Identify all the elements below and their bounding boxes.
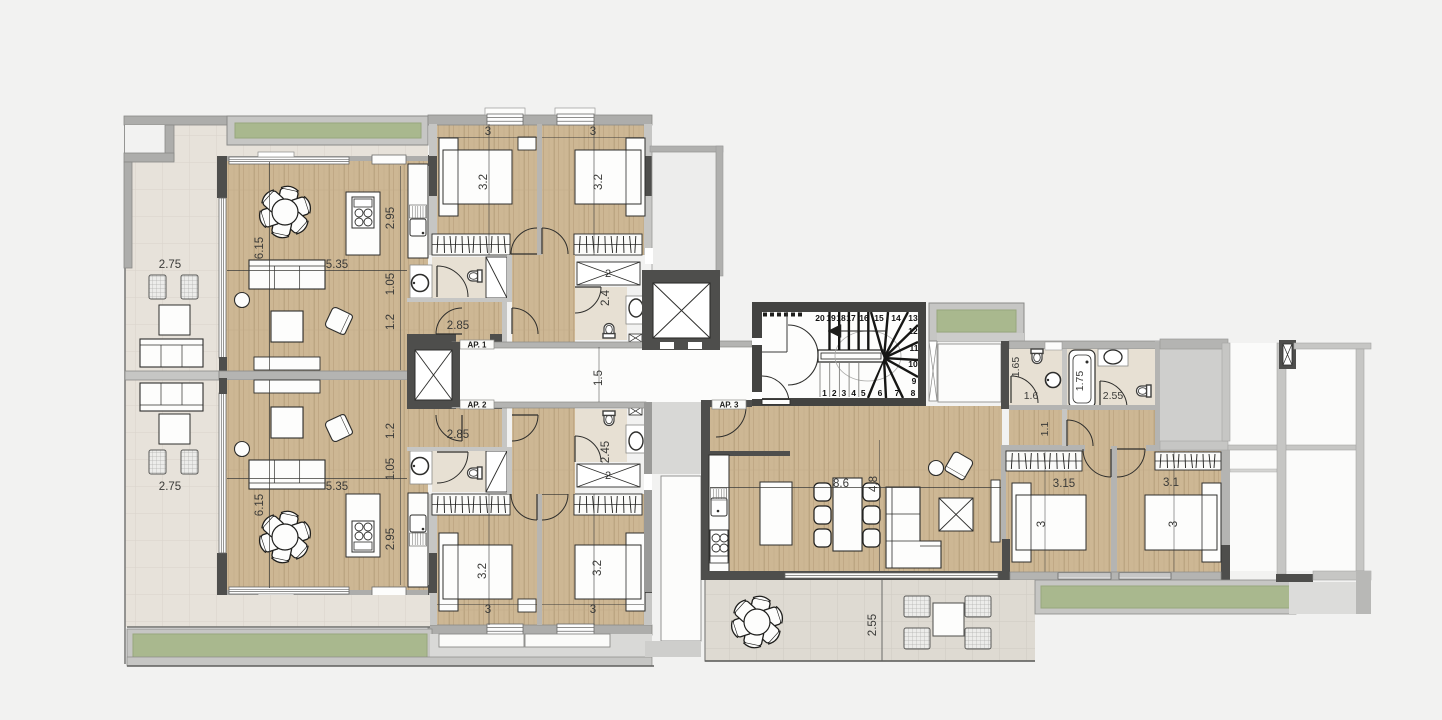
svg-text:1.2: 1.2 xyxy=(385,314,397,330)
svg-text:2.75: 2.75 xyxy=(159,481,181,493)
svg-text:1.05: 1.05 xyxy=(385,458,397,480)
svg-text:8: 8 xyxy=(911,388,916,398)
svg-text:11: 11 xyxy=(910,343,919,353)
svg-text:6.15: 6.15 xyxy=(254,494,266,516)
svg-text:20: 20 xyxy=(815,313,825,323)
svg-text:3: 3 xyxy=(590,604,596,616)
svg-text:2.55: 2.55 xyxy=(1103,390,1124,402)
svg-text:17: 17 xyxy=(846,313,856,323)
svg-text:2: 2 xyxy=(832,388,837,398)
svg-text:1.6: 1.6 xyxy=(1024,390,1039,402)
svg-text:AP. 3: AP. 3 xyxy=(720,401,740,410)
svg-text:2.95: 2.95 xyxy=(385,528,397,550)
svg-text:1.2: 1.2 xyxy=(385,423,397,439)
svg-text:2.85: 2.85 xyxy=(447,320,469,332)
svg-text:16: 16 xyxy=(859,313,869,323)
svg-text:2.4: 2.4 xyxy=(600,289,612,306)
svg-text:2.95: 2.95 xyxy=(385,207,397,229)
svg-text:9: 9 xyxy=(912,376,917,386)
svg-text:1.75: 1.75 xyxy=(1074,371,1086,392)
svg-text:14: 14 xyxy=(891,313,901,323)
svg-text:3.2: 3.2 xyxy=(593,174,605,190)
svg-text:4: 4 xyxy=(851,388,856,398)
svg-text:2.55: 2.55 xyxy=(867,614,879,636)
svg-text:8.6: 8.6 xyxy=(833,478,849,490)
svg-text:3: 3 xyxy=(590,126,596,138)
svg-text:3: 3 xyxy=(485,126,491,138)
svg-text:2: 2 xyxy=(605,268,611,280)
svg-text:7: 7 xyxy=(895,388,900,398)
svg-text:3: 3 xyxy=(842,388,847,398)
svg-text:5: 5 xyxy=(861,388,866,398)
svg-text:3.2: 3.2 xyxy=(592,560,604,576)
svg-text:2.85: 2.85 xyxy=(447,429,469,441)
svg-text:1: 1 xyxy=(822,388,827,398)
svg-text:19: 19 xyxy=(826,313,836,323)
svg-text:6: 6 xyxy=(878,388,883,398)
svg-text:AP. 1: AP. 1 xyxy=(468,341,488,350)
svg-text:6.15: 6.15 xyxy=(254,237,266,259)
svg-text:1.65: 1.65 xyxy=(1010,357,1022,378)
svg-text:3.2: 3.2 xyxy=(478,174,490,190)
svg-text:3.15: 3.15 xyxy=(1053,478,1075,490)
svg-text:12: 12 xyxy=(908,326,918,336)
svg-text:1.05: 1.05 xyxy=(385,273,397,295)
svg-text:2: 2 xyxy=(605,470,611,482)
svg-text:18: 18 xyxy=(836,313,846,323)
svg-text:2.45: 2.45 xyxy=(600,441,612,463)
svg-text:5.35: 5.35 xyxy=(326,481,348,493)
svg-text:5.35: 5.35 xyxy=(326,259,348,271)
svg-text:3.2: 3.2 xyxy=(477,563,489,579)
svg-text:2.75: 2.75 xyxy=(159,259,181,271)
svg-text:3: 3 xyxy=(485,604,491,616)
svg-text:10: 10 xyxy=(908,359,918,369)
svg-text:3.1: 3.1 xyxy=(1163,477,1179,489)
svg-text:3: 3 xyxy=(1036,521,1048,527)
svg-text:15: 15 xyxy=(874,313,884,323)
svg-text:4.8: 4.8 xyxy=(868,476,880,492)
svg-text:1.1: 1.1 xyxy=(1039,422,1051,437)
svg-text:13: 13 xyxy=(908,313,918,323)
svg-text:AP. 2: AP. 2 xyxy=(468,401,488,410)
